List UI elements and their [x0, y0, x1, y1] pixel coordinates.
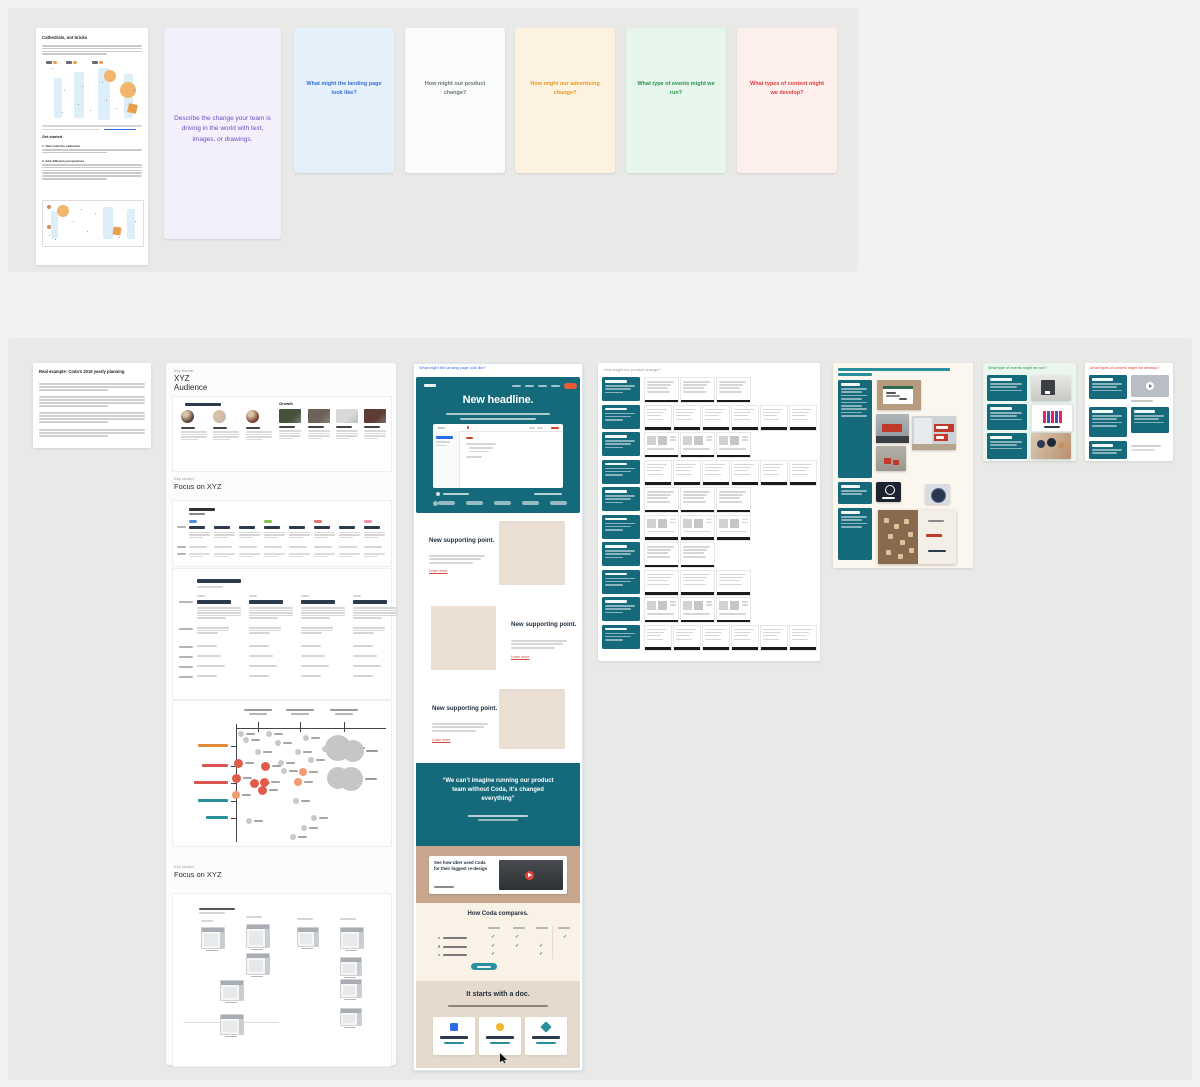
- text-line-skeleton: [81, 209, 82, 210]
- landing-page-mock-card[interactable]: What might the landing page look like? N…: [413, 363, 583, 1071]
- footer-subtitle-skeleton: [416, 1005, 580, 1009]
- text-line-skeleton: [734, 419, 750, 421]
- text-line-skeleton: [314, 526, 330, 529]
- text-line-skeleton: [990, 419, 1022, 421]
- avatar: [246, 410, 259, 423]
- learn-more-link[interactable]: Learn more: [511, 655, 529, 659]
- text-line-skeleton: [605, 523, 635, 525]
- text-line-skeleton: [536, 927, 548, 929]
- text-line-skeleton: [605, 435, 627, 438]
- text-line-skeleton: [900, 540, 905, 545]
- text-line-skeleton: [734, 467, 751, 469]
- event-idea-teal-card[interactable]: [987, 375, 1027, 401]
- text-line-skeleton: [706, 436, 712, 438]
- choice-heading-2: Focus on XYZ: [174, 870, 222, 879]
- text-line-skeleton: [344, 999, 356, 1001]
- building-shape: [127, 209, 135, 239]
- text-line-skeleton: [249, 675, 269, 677]
- text-line-skeleton: [605, 443, 631, 445]
- ad-preview-card[interactable]: [789, 625, 817, 651]
- ad-preview-card[interactable]: [760, 460, 788, 486]
- text-line-skeleton: [841, 519, 862, 521]
- events-ideas-card[interactable]: What type of events might we run?: [983, 363, 1076, 461]
- intro-frame[interactable]: Cathedrals, not bricks Get started 1. St…: [8, 8, 858, 272]
- text-line-skeleton: [763, 464, 783, 466]
- text-line-skeleton: [705, 639, 721, 641]
- text-line-skeleton: [841, 402, 867, 404]
- text-line-skeleton: [683, 491, 710, 493]
- bubble: [258, 786, 267, 795]
- axis-tick: [231, 783, 237, 784]
- photo-thumb: [308, 409, 330, 423]
- avatar: [213, 410, 226, 423]
- ad-preview-card[interactable]: [644, 377, 679, 403]
- ad-preview-card[interactable]: [673, 460, 701, 486]
- text-line-skeleton: [434, 886, 454, 888]
- supporting-title: New supporting point.: [429, 537, 495, 544]
- text-line-skeleton: [841, 526, 862, 528]
- ad-preview-card[interactable]: [716, 515, 751, 541]
- text-line-skeleton: [432, 723, 488, 725]
- street-billboard-photo: [876, 414, 909, 443]
- text-line-skeleton: [605, 529, 623, 531]
- text-line-skeleton: [676, 415, 690, 417]
- mini-window: [246, 953, 270, 975]
- ad-preview-card[interactable]: [680, 542, 715, 568]
- text-line-skeleton: [197, 665, 225, 667]
- text-line-skeleton: [213, 434, 239, 436]
- ad-preview-card[interactable]: [680, 377, 715, 403]
- text-line-skeleton: [340, 918, 356, 920]
- star-icon: [436, 492, 440, 496]
- bubble-chart-card[interactable]: [172, 700, 392, 847]
- ad-preview-card[interactable]: [673, 405, 701, 431]
- text-line-skeleton: [42, 152, 107, 154]
- text-line-skeleton: [301, 800, 310, 802]
- text-line-skeleton: [444, 1042, 464, 1044]
- event-idea-teal-card[interactable]: [987, 433, 1027, 459]
- video-title: See how Uber used Coda for their biggest…: [434, 860, 492, 871]
- text-line-skeleton: [841, 391, 862, 393]
- text-line-skeleton: [364, 430, 386, 432]
- text-line-skeleton: [202, 764, 228, 767]
- mini-window-body: [223, 1021, 237, 1032]
- question-sticky-advertising[interactable]: How might our advertising change?: [515, 28, 615, 173]
- ad-preview-card[interactable]: [702, 625, 730, 651]
- text-line-skeleton: [705, 409, 725, 411]
- text-line-skeleton: [734, 412, 751, 414]
- text-line-skeleton: [645, 510, 678, 513]
- ad-preview-card[interactable]: [731, 625, 759, 651]
- text-line-skeleton: [990, 415, 1017, 417]
- text-line-skeleton: [792, 474, 808, 476]
- compare-section: How Coda compares. ✓✓✓✓✓✓✓✓: [416, 903, 580, 981]
- collage-note-teal[interactable]: [838, 482, 872, 504]
- text-line-skeleton: [440, 1036, 468, 1039]
- footer-card-doc[interactable]: [433, 1017, 475, 1055]
- ad-preview-card[interactable]: [644, 597, 679, 623]
- text-line-skeleton: [298, 836, 307, 838]
- text-line-skeleton: [201, 920, 213, 922]
- content-idea-teal-card[interactable]: [1089, 375, 1127, 399]
- text-line-skeleton: [605, 578, 635, 580]
- ad-preview-card[interactable]: [644, 432, 679, 458]
- roadmap-table-card[interactable]: [172, 500, 392, 567]
- ad-preview-card[interactable]: [680, 487, 715, 513]
- key-choice-label: Key choice:: [174, 476, 195, 481]
- ad-variant-teal-card[interactable]: [602, 487, 640, 511]
- text-line-skeleton: [239, 553, 260, 555]
- text-line-skeleton: [719, 577, 743, 579]
- text-line-skeleton: [694, 436, 703, 445]
- content-idea-teal-card[interactable]: [1089, 441, 1127, 459]
- text-line-skeleton: [197, 632, 218, 634]
- mini-window-body: [249, 960, 263, 972]
- audience-card[interactable]: Growth: [172, 396, 392, 472]
- text-line-skeleton: [197, 645, 217, 647]
- text-line-skeleton: [179, 628, 193, 630]
- text-line-skeleton: [239, 532, 260, 534]
- ad-preview-card[interactable]: [760, 405, 788, 431]
- text-line-skeleton: [676, 464, 696, 466]
- learn-more-link[interactable]: Learn more: [432, 738, 450, 742]
- text-line-skeleton: [309, 771, 318, 773]
- text-line-skeleton: [249, 665, 277, 667]
- ad-preview-card[interactable]: [760, 625, 788, 651]
- ad-variant-teal-card[interactable]: [602, 405, 640, 429]
- text-line-skeleton: [189, 546, 207, 548]
- text-line-skeleton: [719, 494, 743, 496]
- text-line-skeleton: [336, 430, 358, 432]
- text-line-skeleton: [706, 439, 712, 441]
- text-line-skeleton: [605, 388, 631, 390]
- text-line-skeleton: [119, 237, 120, 238]
- screens-flow-card[interactable]: [172, 893, 392, 1067]
- text-line-skeleton: [763, 629, 783, 631]
- text-line-skeleton: [301, 675, 321, 677]
- text-line-skeleton: [177, 546, 186, 548]
- text-line-skeleton: [674, 427, 700, 430]
- whiteboard-green-bar: [883, 386, 913, 389]
- mini-window-body: [343, 1015, 355, 1023]
- ad-preview-card[interactable]: [680, 432, 715, 458]
- prompt-sticky[interactable]: Describe the change your team is driving…: [164, 28, 281, 239]
- text-line-skeleton: [886, 395, 900, 397]
- text-line-skeleton: [246, 434, 272, 436]
- red-sign: [934, 424, 954, 432]
- ad-preview-card[interactable]: [644, 515, 679, 541]
- ad-preview-card[interactable]: [644, 460, 672, 486]
- text-line-skeleton: [39, 415, 145, 417]
- mini-window-strip: [220, 932, 224, 948]
- text-line-skeleton: [719, 574, 746, 576]
- text-line-skeleton: [719, 601, 728, 610]
- content-note-teal[interactable]: [1131, 407, 1169, 433]
- advertising-collage-card[interactable]: [833, 363, 973, 568]
- video-card[interactable]: See how Uber used Coda for their biggest…: [429, 856, 567, 894]
- ad-variant-teal-card[interactable]: [602, 570, 640, 594]
- supporting-title: New supporting point.: [511, 621, 577, 628]
- text-line-skeleton: [841, 412, 862, 414]
- text-line-skeleton: [647, 474, 663, 476]
- ad-preview-card[interactable]: [673, 625, 701, 651]
- text-line-skeleton: [936, 436, 944, 439]
- emoji-dot: [53, 61, 56, 64]
- check-icon: ✓: [515, 934, 521, 940]
- ad-preview-card[interactable]: [716, 487, 751, 513]
- content-ideas-card[interactable]: What types of content might we develop?: [1085, 363, 1173, 461]
- video-placeholder[interactable]: [1131, 375, 1169, 397]
- photo-thumb: [336, 409, 358, 423]
- footer-card-project[interactable]: [525, 1017, 567, 1055]
- text-line-skeleton: [264, 520, 272, 523]
- ad-preview-card[interactable]: [716, 432, 751, 458]
- text-line-skeleton: [886, 392, 896, 394]
- text-line-skeleton: [705, 635, 719, 637]
- text-line-skeleton: [304, 781, 313, 783]
- text-line-skeleton: [466, 437, 473, 439]
- red-cube: [884, 458, 891, 464]
- text-line-skeleton: [732, 427, 758, 430]
- text-line-skeleton: [761, 647, 787, 650]
- mini-window-strip: [357, 1013, 361, 1025]
- question-sticky-content[interactable]: What types of content might we develop?: [737, 28, 837, 173]
- text-line-skeleton: [364, 433, 386, 435]
- text-line-skeleton: [605, 385, 635, 387]
- bubble-large: [342, 740, 364, 762]
- logo-tile-dark: [876, 482, 901, 502]
- text-line-skeleton: [353, 632, 374, 634]
- compare-cta-button[interactable]: [471, 963, 497, 970]
- block-shape: [127, 103, 138, 114]
- text-line-skeleton: [87, 231, 88, 232]
- check-icon: ✓: [491, 934, 497, 940]
- bubble: [281, 768, 287, 774]
- text-line-skeleton: [790, 647, 816, 650]
- question-text: How might our advertising change?: [525, 80, 605, 97]
- learn-more-link[interactable]: Learn more: [429, 569, 447, 573]
- text-line-skeleton: [683, 580, 704, 582]
- ad-variant-teal-card[interactable]: [602, 460, 640, 484]
- check-icon: ✓: [491, 951, 497, 957]
- text-line-skeleton: [1092, 383, 1122, 385]
- collage-note-teal[interactable]: [838, 380, 872, 478]
- text-line-skeleton: [242, 794, 251, 796]
- emoji-dot: [47, 225, 51, 229]
- app-screenshot: [433, 424, 563, 488]
- text-line-skeleton: [841, 523, 867, 525]
- text-line-skeleton: [676, 635, 690, 637]
- text-line-skeleton: [214, 556, 228, 558]
- text-line-skeleton: [605, 463, 627, 466]
- text-line-skeleton: [336, 433, 358, 435]
- examples-frame[interactable]: Real example: Coda's 2019 yearly plannin…: [8, 338, 1192, 1080]
- text-line-skeleton: [490, 1042, 510, 1044]
- text-line-skeleton: [344, 1027, 356, 1029]
- badge-logo-icon: [931, 488, 946, 503]
- text-line-skeleton: [135, 221, 136, 222]
- ad-preview-card[interactable]: [644, 625, 672, 651]
- ad-preview-card[interactable]: [680, 597, 715, 623]
- hero-cta-button[interactable]: [564, 383, 577, 389]
- ad-preview-card[interactable]: [716, 597, 751, 623]
- text-line-skeleton: [537, 427, 543, 429]
- ad-preview-card[interactable]: [789, 405, 817, 431]
- text-line-skeleton: [189, 556, 203, 558]
- ad-variant-teal-card[interactable]: [602, 625, 640, 649]
- text-line-skeleton: [683, 448, 710, 450]
- text-line-skeleton: [279, 430, 301, 432]
- ad-preview-card[interactable]: [702, 405, 730, 431]
- text-line-skeleton: [364, 435, 386, 437]
- ad-preview-card[interactable]: [731, 460, 759, 486]
- text-line-skeleton: [742, 436, 748, 438]
- text-line-skeleton: [647, 419, 663, 421]
- text-line-skeleton: [763, 467, 780, 469]
- ad-preview-card[interactable]: [716, 570, 751, 596]
- collage-note-teal[interactable]: [838, 508, 872, 560]
- ad-preview-card[interactable]: [716, 377, 751, 403]
- text-line-skeleton: [742, 522, 748, 524]
- ad-variations-card[interactable]: How might our product change?: [598, 363, 820, 661]
- ad-variant-teal-card[interactable]: [602, 597, 640, 621]
- text-line-skeleton: [1092, 415, 1122, 417]
- text-line-skeleton: [513, 927, 525, 929]
- text-line-skeleton: [647, 584, 670, 586]
- text-line-skeleton: [225, 1036, 237, 1038]
- question-sticky-product[interactable]: How might our product change?: [405, 28, 505, 173]
- text-line-skeleton: [42, 51, 142, 53]
- text-line-skeleton: [647, 580, 668, 582]
- bubble: [311, 815, 317, 821]
- text-line-skeleton: [301, 632, 322, 634]
- text-line-skeleton: [605, 557, 623, 559]
- text-line-skeleton: [469, 451, 489, 453]
- text-line-skeleton: [92, 61, 98, 64]
- ring-logo-icon: [885, 485, 895, 495]
- text-line-skeleton: [928, 550, 946, 552]
- text-line-skeleton: [353, 665, 381, 667]
- text-line-skeleton: [64, 90, 65, 91]
- text-line-skeleton: [339, 556, 353, 558]
- ad-variant-teal-card[interactable]: [602, 542, 640, 566]
- text-line-skeleton: [264, 556, 278, 558]
- ad-preview-card[interactable]: [731, 405, 759, 431]
- ad-variant-teal-card[interactable]: [602, 377, 640, 401]
- mini-window: [340, 927, 364, 949]
- text-line-skeleton: [717, 455, 750, 458]
- landing-question-link[interactable]: What might the landing page look like?: [419, 365, 529, 370]
- ad-variant-teal-card[interactable]: [602, 432, 640, 456]
- text-line-skeleton: [197, 579, 241, 583]
- text-line-skeleton: [761, 427, 787, 430]
- text-line-skeleton: [647, 391, 670, 393]
- supporting-section-2: New supporting point. Learn more: [414, 600, 582, 676]
- logo-tile-light: [925, 484, 950, 504]
- text-line-skeleton: [289, 526, 305, 529]
- text-line-skeleton: [719, 448, 746, 450]
- question-sticky-landing-page[interactable]: What might the landing page look like?: [294, 28, 394, 173]
- text-line-skeleton: [1092, 410, 1113, 413]
- text-line-skeleton: [647, 436, 656, 445]
- mini-window: [246, 924, 270, 948]
- mini-window-strip: [357, 962, 361, 975]
- text-line-skeleton: [214, 526, 230, 529]
- text-line-skeleton: [717, 537, 750, 540]
- ad-preview-card[interactable]: [644, 405, 672, 431]
- text-line-skeleton: [658, 601, 667, 610]
- text-line-skeleton: [283, 742, 292, 744]
- hero-section: New headline.: [416, 377, 580, 513]
- check-icon: ✓: [491, 943, 497, 949]
- mini-window-body: [223, 987, 237, 998]
- text-line-skeleton: [792, 470, 806, 472]
- text-line-skeleton: [990, 390, 1022, 392]
- ad-preview-card[interactable]: [680, 570, 715, 596]
- mini-window: [340, 1008, 362, 1026]
- footer-card-idea[interactable]: [479, 1017, 521, 1055]
- theme-heading: XYZAudience: [174, 374, 207, 393]
- real-example-note[interactable]: Real example: Coda's 2019 yearly plannin…: [33, 363, 151, 448]
- text-line-skeleton: [647, 574, 674, 576]
- text-line-skeleton: [90, 110, 91, 111]
- text-line-skeleton: [605, 440, 635, 442]
- text-line-skeleton: [249, 600, 283, 604]
- text-line-skeleton: [990, 444, 1017, 446]
- question-sticky-events[interactable]: What type of events might we run?: [626, 28, 726, 173]
- text-line-skeleton: [670, 436, 676, 438]
- text-line-skeleton: [734, 629, 754, 631]
- text-line-skeleton: [1044, 426, 1060, 428]
- text-line-skeleton: [339, 532, 360, 534]
- text-line-skeleton: [841, 485, 860, 488]
- text-line-skeleton: [703, 482, 729, 485]
- text-line-skeleton: [888, 534, 893, 539]
- intro-doc-card[interactable]: Cathedrals, not bricks Get started 1. St…: [36, 28, 148, 265]
- red-billboard: [882, 424, 902, 432]
- ad-preview-card[interactable]: [644, 542, 679, 568]
- content-idea-teal-card[interactable]: [1089, 407, 1127, 437]
- planning-column[interactable]: Key theme: XYZAudience Growth Key choice…: [166, 363, 396, 1065]
- text-line-skeleton: [436, 436, 453, 439]
- text-line-skeleton: [239, 537, 253, 539]
- text-line-skeleton: [676, 474, 692, 476]
- text-line-skeleton: [841, 395, 867, 397]
- whiteboard-canvas[interactable]: Cathedrals, not bricks Get started 1. St…: [0, 0, 1200, 1087]
- text-line-skeleton: [189, 532, 210, 534]
- audience-comparison-card[interactable]: [172, 568, 392, 700]
- text-line-skeleton: [429, 555, 485, 557]
- play-button-icon[interactable]: [525, 871, 534, 880]
- text-line-skeleton: [717, 510, 750, 513]
- building-shape: [74, 72, 84, 118]
- text-line-skeleton: [330, 709, 358, 711]
- ad-variant-teal-card[interactable]: [602, 515, 640, 539]
- text-line-skeleton: [66, 61, 72, 64]
- ad-preview-card[interactable]: [680, 515, 715, 541]
- ad-preview-card[interactable]: [789, 460, 817, 486]
- bubble: [275, 740, 281, 746]
- text-line-skeleton: [309, 827, 318, 829]
- text-line-skeleton: [239, 534, 260, 536]
- ad-preview-card[interactable]: [644, 487, 679, 513]
- ad-preview-card[interactable]: [702, 460, 730, 486]
- text-line-skeleton: [719, 381, 746, 383]
- event-idea-teal-card[interactable]: [987, 404, 1027, 430]
- supporting-section-1: New supporting point. Learn more: [414, 517, 582, 593]
- ad-preview-card[interactable]: [644, 570, 679, 596]
- text-line-skeleton: [55, 239, 56, 240]
